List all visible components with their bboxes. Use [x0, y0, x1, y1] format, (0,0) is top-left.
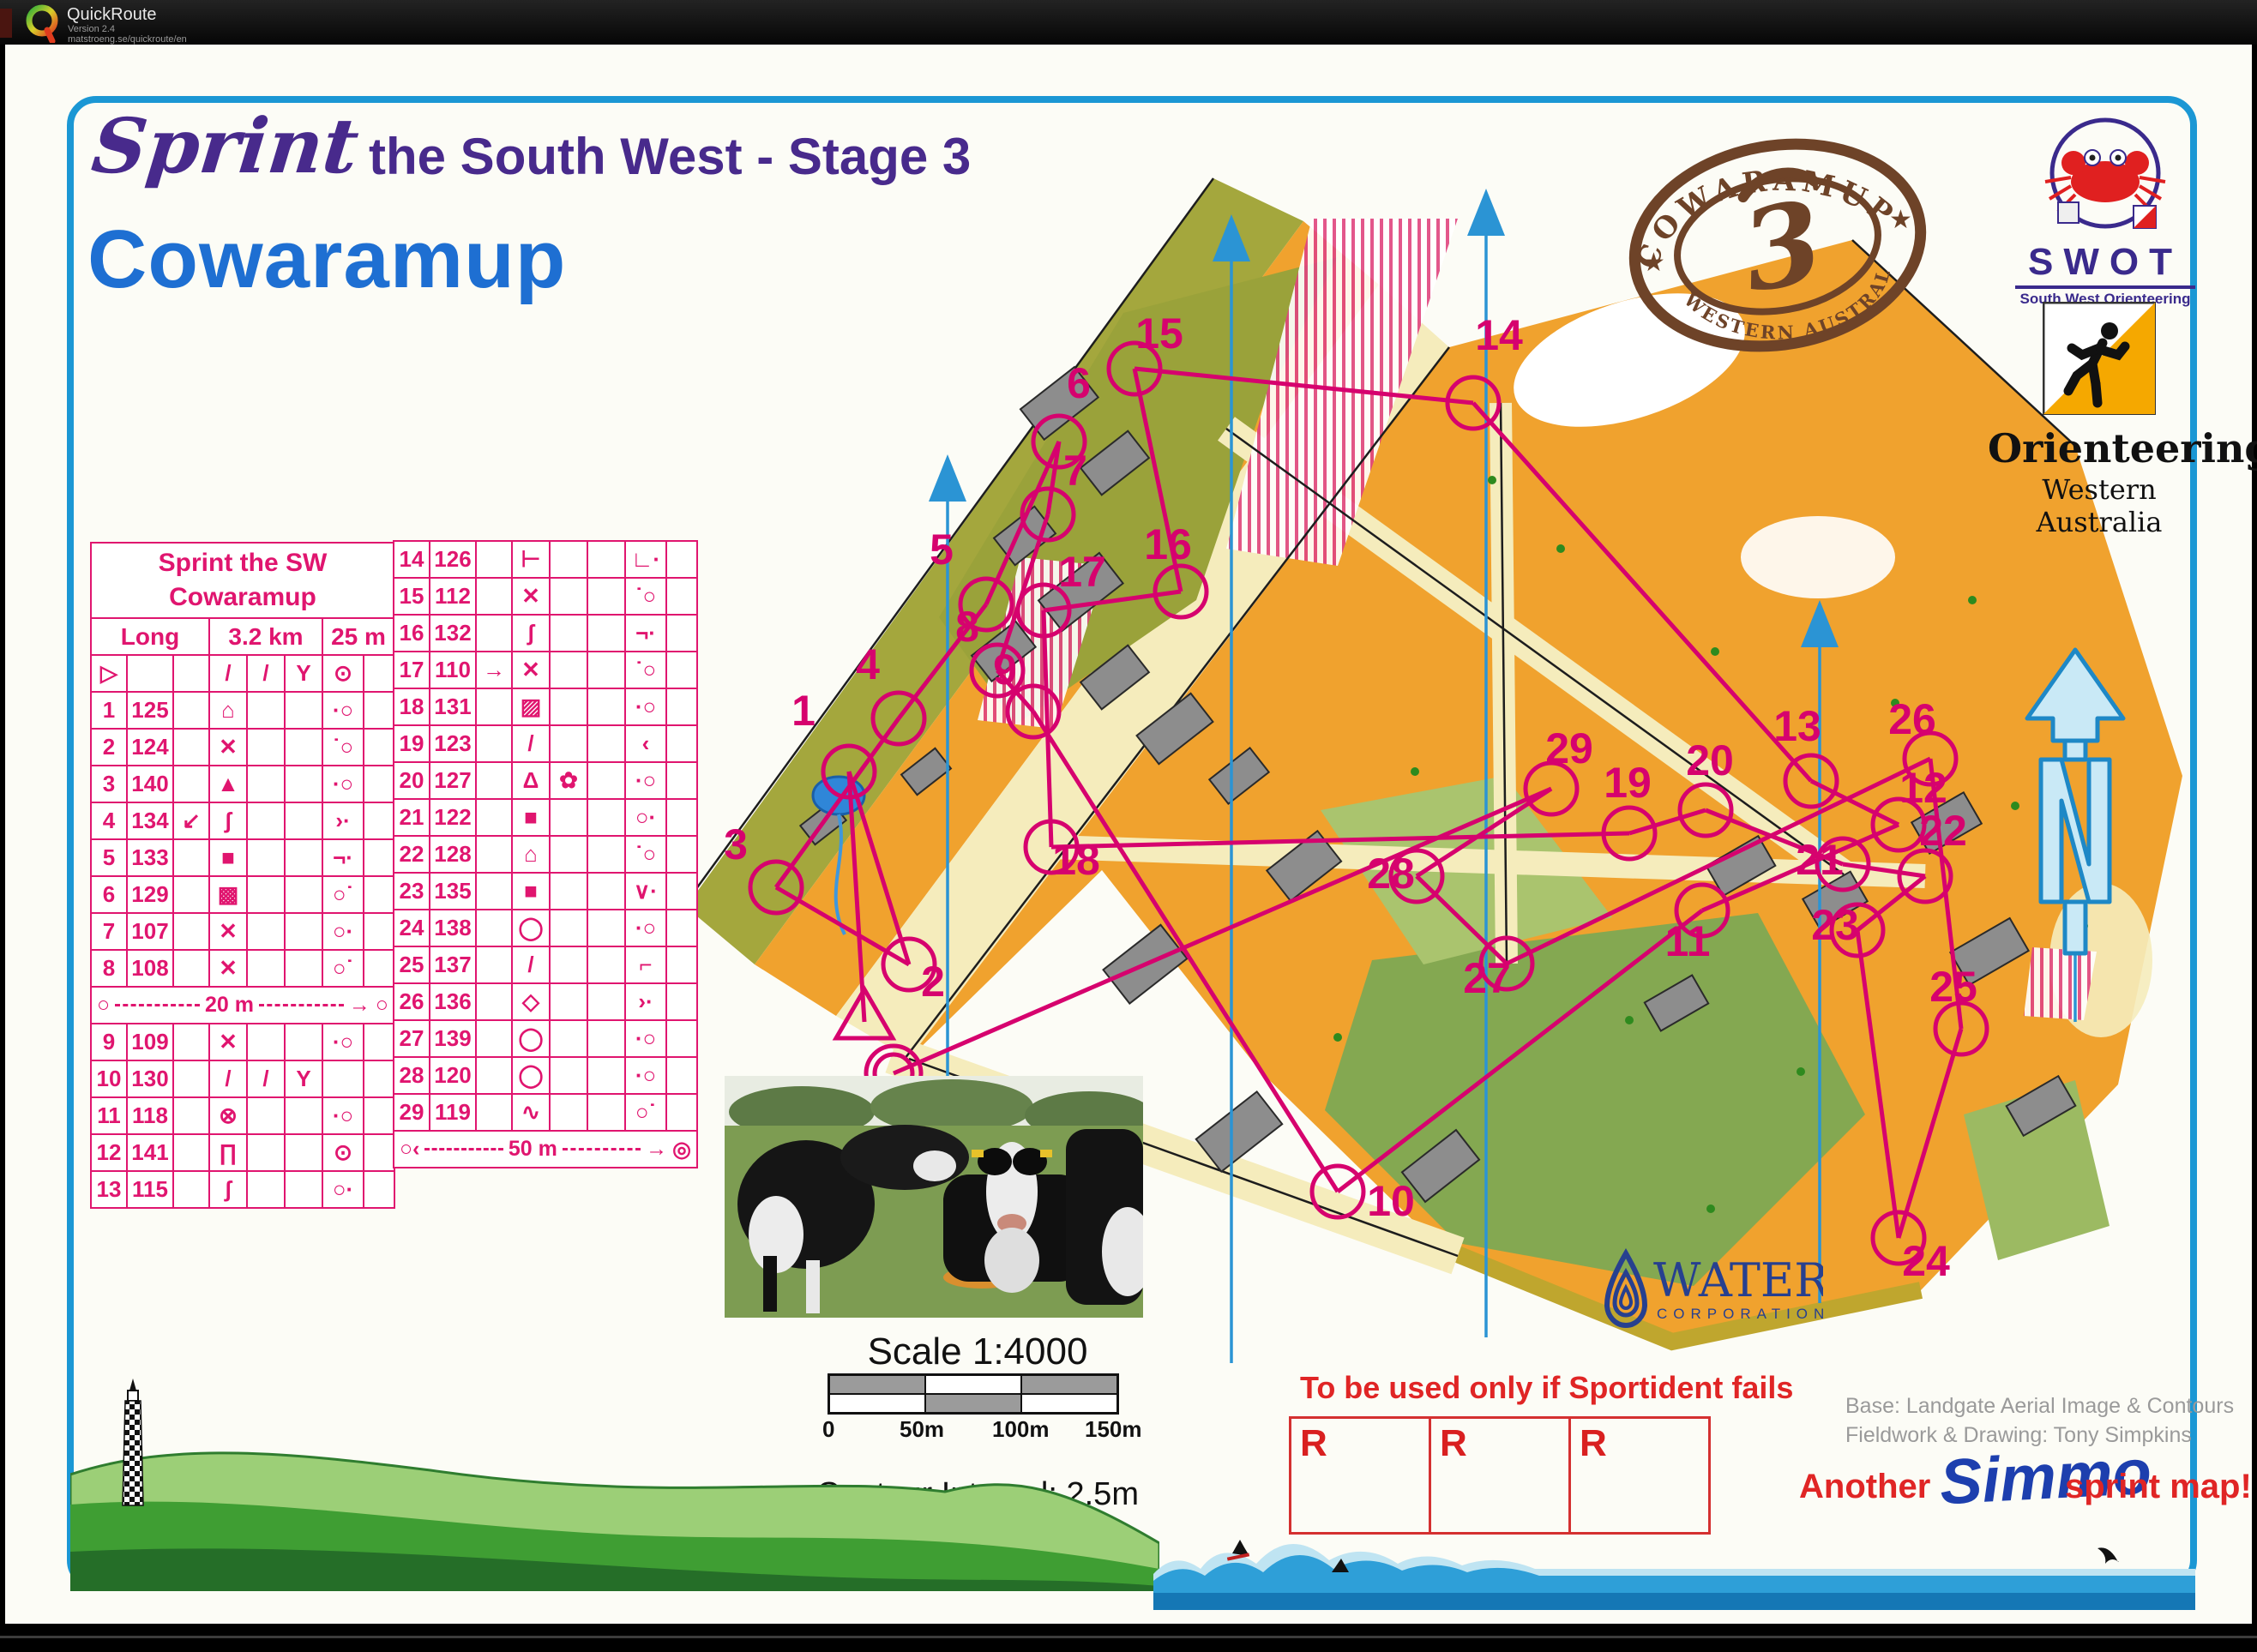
desc-cell: ⊢ [512, 541, 550, 578]
desc-cell: ∨· [625, 873, 666, 910]
desc-cell [550, 615, 587, 652]
desc-cell: 1 [91, 692, 127, 729]
desc-cell [666, 1094, 697, 1131]
desc-cell [587, 836, 625, 873]
desc-cell [587, 946, 625, 983]
control-number: 3 [724, 820, 748, 868]
desc-cell: / [512, 946, 550, 983]
desc-cell: ✕ [209, 950, 247, 987]
desc-cell: 14 [394, 541, 430, 578]
control-descriptions-sheet-1: Sprint the SW Cowaramup Long 3.2 km 25 m… [90, 542, 395, 1209]
desc-cell: ✕ [209, 729, 247, 766]
desc-cell [666, 652, 697, 688]
desc-cell: ʃ [209, 802, 247, 839]
punch-box-3: R [1568, 1416, 1711, 1535]
desc-cell: ■ [512, 799, 550, 836]
desc-cell [285, 839, 322, 876]
desc-cell: 18 [394, 688, 430, 725]
desc-event-name: Sprint the SW [92, 546, 394, 580]
control-number: 27 [1463, 954, 1511, 1002]
desc-cell: 130 [127, 1060, 173, 1097]
desc-row: ▷//Y⊙ [91, 655, 394, 692]
desc-cell: 123 [430, 725, 476, 762]
desc-cell [666, 836, 697, 873]
swot-logo: SWOT South West Orienteering Trekkers [1994, 113, 2217, 325]
desc-cell [285, 913, 322, 950]
desc-row: 15112✕˙○ [394, 578, 697, 615]
control-number: 17 [1058, 548, 1106, 596]
control-number: 26 [1888, 695, 1936, 743]
desc-cell [364, 1060, 394, 1097]
desc-cell: 17 [394, 652, 430, 688]
desc-cell: ▨ [512, 688, 550, 725]
cow-photo [725, 1076, 1143, 1318]
desc-cell [587, 688, 625, 725]
desc-cell [127, 655, 173, 692]
desc-cell [476, 1020, 512, 1057]
desc-cell [247, 950, 285, 987]
desc-row: 21122■○· [394, 799, 697, 836]
control-number: 2 [921, 958, 945, 1006]
desc-cell [322, 1060, 364, 1097]
desc-cell: 119 [430, 1094, 476, 1131]
desc-cell: ✕ [209, 1024, 247, 1060]
desc-cell [666, 983, 697, 1020]
desc-cell: 7 [91, 913, 127, 950]
control-number: 19 [1604, 759, 1652, 807]
desc-cell: 13 [91, 1171, 127, 1208]
desc-cell: 15 [394, 578, 430, 615]
desc-cell [476, 799, 512, 836]
desc-cell [666, 615, 697, 652]
desc-cell [364, 802, 394, 839]
punch-box-2: R [1429, 1416, 1571, 1535]
desc-cell: 128 [430, 836, 476, 873]
desc-row: 4134↙ʃ›· [91, 802, 394, 839]
desc-title-cell: Sprint the SW Cowaramup [91, 543, 394, 618]
desc-cell: ○˙ [322, 950, 364, 987]
desc-row: 11118⊗·○ [91, 1097, 394, 1134]
window-titlebar: QuickRoute Version 2.4 matstroeng.se/qui… [0, 0, 2257, 45]
desc-cell [476, 873, 512, 910]
desc-cell [173, 913, 209, 950]
desc-cell [550, 873, 587, 910]
desc-cell [666, 799, 697, 836]
desc-cell [247, 1171, 285, 1208]
desc-cell [550, 541, 587, 578]
desc-cell: 136 [430, 983, 476, 1020]
control-number: 28 [1367, 850, 1415, 898]
desc-cell [173, 692, 209, 729]
control-number: 25 [1929, 963, 1977, 1011]
desc-row: 27139◯·○ [394, 1020, 697, 1057]
desc-cell: ¬· [322, 839, 364, 876]
desc-cell [285, 1171, 322, 1208]
desc-cell [173, 1060, 209, 1097]
desc-cell [247, 766, 285, 802]
desc-cell: ○· [322, 913, 364, 950]
control-number: 18 [1052, 836, 1100, 884]
desc-cell [285, 692, 322, 729]
course-length: 3.2 km [209, 618, 322, 655]
desc-cell: 22 [394, 836, 430, 873]
control-number: 23 [1811, 901, 1859, 949]
desc-cell: / [512, 725, 550, 762]
desc-cell [550, 946, 587, 983]
desc-cell: 127 [430, 762, 476, 799]
desc-cell: 26 [394, 983, 430, 1020]
control-flag-icon [2134, 206, 2156, 228]
desc-header-row: Long 3.2 km 25 m [91, 618, 394, 655]
desc-cell [587, 615, 625, 652]
desc-cell [364, 1097, 394, 1134]
desc-cell [247, 729, 285, 766]
desc-cell [666, 688, 697, 725]
orienteering-wa-logo: Orienteering Western Australia [1988, 302, 2211, 538]
scale-label: Scale 1:4000 [797, 1331, 1158, 1373]
desc-cell [364, 950, 394, 987]
desc-cell: 20 [394, 762, 430, 799]
desc-cell: 11 [91, 1097, 127, 1134]
desc-divider-row: ○‹50 m→◎ [394, 1131, 697, 1168]
desc-cell [666, 1057, 697, 1094]
desc-cell: ✕ [512, 652, 550, 688]
desc-cell [173, 1171, 209, 1208]
desc-cell [587, 1094, 625, 1131]
desc-row: 18131▨·○ [394, 688, 697, 725]
desc-cell [587, 578, 625, 615]
desc-cell [666, 762, 697, 799]
desc-cell: ʃ [512, 615, 550, 652]
desc-cell: ○· [625, 799, 666, 836]
desc-cell: ✕ [209, 913, 247, 950]
desc-cell [173, 950, 209, 987]
desc-cell [173, 839, 209, 876]
desc-cell: 108 [127, 950, 173, 987]
desc-cell: 25 [394, 946, 430, 983]
desc-cell [285, 802, 322, 839]
control-number: 8 [955, 603, 979, 651]
desc-cell: ·○ [322, 766, 364, 802]
desc-cell: ○˙ [322, 876, 364, 913]
desc-cell: ✕ [512, 578, 550, 615]
desc-cell [173, 876, 209, 913]
map-title-city: Cowaramup [87, 213, 566, 307]
desc-cell [364, 766, 394, 802]
desc-cell: 120 [430, 1057, 476, 1094]
water-wordmark: WATER [1653, 1253, 1823, 1307]
desc-cell: ◇ [512, 983, 550, 1020]
desc-cell: ˙○ [625, 652, 666, 688]
desc-cell: ✿ [550, 762, 587, 799]
control-number: 21 [1796, 836, 1844, 884]
desc-cell [173, 1024, 209, 1060]
desc-cell: ʃ [209, 1171, 247, 1208]
control-number: 14 [1475, 311, 1523, 359]
credit-base: Base: Landgate Aerial Image & Contours [1845, 1394, 2234, 1419]
desc-cell: 134 [127, 802, 173, 839]
scan-edge-line [0, 1636, 2257, 1638]
desc-cell: ↙ [173, 802, 209, 839]
desc-cell [247, 913, 285, 950]
sportident-note: To be used only if Sportident fails [1300, 1370, 1793, 1406]
desc-cell [550, 688, 587, 725]
desc-cell [476, 762, 512, 799]
desc-row: 22128⌂˙○ [394, 836, 697, 873]
desc-row: 17110→✕˙○ [394, 652, 697, 688]
desc-cell [247, 876, 285, 913]
desc-row: 12141∏⊙ [91, 1134, 394, 1171]
desc-cell: ⊙ [322, 655, 364, 692]
desc-row: 1125⌂·○ [91, 692, 394, 729]
desc-cell [587, 541, 625, 578]
desc-cell [476, 688, 512, 725]
desc-cell [476, 541, 512, 578]
orienteering-wa-icon [2043, 302, 2156, 415]
desc-cell [476, 983, 512, 1020]
desc-cell [550, 983, 587, 1020]
desc-cell [285, 1134, 322, 1171]
desc-row: 2124✕˙○ [91, 729, 394, 766]
desc-row: 7107✕○· [91, 913, 394, 950]
desc-cell [550, 1094, 587, 1131]
desc-cell: 29 [394, 1094, 430, 1131]
desc-cell: 8 [91, 950, 127, 987]
desc-cell: 131 [430, 688, 476, 725]
desc-cell: ⊗ [209, 1097, 247, 1134]
simmo-pre: Another [1799, 1468, 1930, 1506]
desc-cell [364, 692, 394, 729]
desc-cell [247, 1097, 285, 1134]
desc-cell [247, 1024, 285, 1060]
desc-cell [587, 873, 625, 910]
desc-row: 8108✕○˙ [91, 950, 394, 987]
desc-cell [173, 766, 209, 802]
desc-cell: / [247, 655, 285, 692]
swot-acronym: SWOT [1994, 241, 2217, 284]
desc-cell [550, 1020, 587, 1057]
desc-cell: 138 [430, 910, 476, 946]
desc-cell [364, 1134, 394, 1171]
desc-cell [587, 983, 625, 1020]
desc-row: 28120◯·○ [394, 1057, 697, 1094]
desc-cell [364, 655, 394, 692]
desc-cell: ›· [625, 983, 666, 1020]
desc-cell: ⊙ [322, 1134, 364, 1171]
desc-cell: 28 [394, 1057, 430, 1094]
desc-cell [666, 1020, 697, 1057]
desc-cell [587, 652, 625, 688]
control-number: 7 [1063, 447, 1087, 495]
control-descriptions-sheet-2: 14126⊢∟·15112✕˙○16132ʃ¬·17110→✕˙○18131▨·… [393, 540, 698, 1168]
desc-cell [285, 766, 322, 802]
desc-cell: ·○ [625, 762, 666, 799]
desc-cell [476, 725, 512, 762]
desc-row: 3140▲·○ [91, 766, 394, 802]
control-number: 29 [1545, 724, 1593, 772]
desc-cell: ˙○ [625, 836, 666, 873]
desc-cell [285, 729, 322, 766]
lighthouse-icon [114, 1379, 152, 1507]
desc-cell [364, 1171, 394, 1208]
desc-cell: 3 [91, 766, 127, 802]
desc-cell [587, 1020, 625, 1057]
desc-cell [666, 541, 697, 578]
desc-row: 13115ʃ○· [91, 1171, 394, 1208]
desc-cell: ¬· [625, 615, 666, 652]
desc-cell: 23 [394, 873, 430, 910]
desc-cell: 133 [127, 839, 173, 876]
desc-row: 20127Δ✿·○ [394, 762, 697, 799]
desc-cell: 6 [91, 876, 127, 913]
desc-cell: 118 [127, 1097, 173, 1134]
scale-bar-segments [828, 1373, 1119, 1415]
app-url: matstroeng.se/quickroute/en [68, 34, 187, 45]
owa-line2: Western Australia [1988, 473, 2211, 538]
desc-cell: 122 [430, 799, 476, 836]
desc-cell: ·○ [625, 1020, 666, 1057]
desc-cell: ›· [322, 802, 364, 839]
desc-cell: ·○ [625, 910, 666, 946]
desc-cell: ‹ [625, 725, 666, 762]
punch-box-letter: R [1580, 1422, 1607, 1464]
desc-cell: ˙○ [625, 578, 666, 615]
desc-cell: 124 [127, 729, 173, 766]
desc-cell [550, 1057, 587, 1094]
desc-cell [173, 1097, 209, 1134]
desc-cell: 12 [91, 1134, 127, 1171]
desc-cell: 24 [394, 910, 430, 946]
desc-cell [550, 836, 587, 873]
control-number: 15 [1135, 309, 1183, 357]
punch-box-letter: R [1440, 1422, 1467, 1464]
control-number: 24 [1902, 1237, 1950, 1285]
desc-cell [285, 876, 322, 913]
desc-cell: ▲ [209, 766, 247, 802]
control-number: 5 [930, 526, 954, 574]
desc-cell: ˙○ [322, 729, 364, 766]
desc-cell: Y [285, 655, 322, 692]
desc-cell [476, 578, 512, 615]
desc-cell: 137 [430, 946, 476, 983]
desc-cell: 109 [127, 1024, 173, 1060]
desc-cell [247, 839, 285, 876]
desc-cell [476, 836, 512, 873]
simmo-post: sprint map! [2065, 1468, 2252, 1506]
desc-row: 25137/⌐ [394, 946, 697, 983]
desc-cell: / [247, 1060, 285, 1097]
desc-cell [173, 729, 209, 766]
desc-cell: 27 [394, 1020, 430, 1057]
desc-cell [364, 729, 394, 766]
desc-row: 16132ʃ¬· [394, 615, 697, 652]
stamp-star-left: ★ [1642, 249, 1665, 277]
cowaramup-stamp: COWARAMUP WESTERN AUSTRALIA ★ ★ 3 [1623, 125, 1932, 369]
desc-cell [247, 692, 285, 729]
hills-illustration [70, 1423, 1159, 1591]
desc-cell [666, 873, 697, 910]
desc-cell: Δ [512, 762, 550, 799]
punch-box-letter: R [1300, 1422, 1327, 1464]
course-climb: 25 m [322, 618, 394, 655]
water-corporation-logo: WATER CORPORATION [1600, 1243, 1823, 1342]
desc-cell: 19 [394, 725, 430, 762]
desc-cell: ⌐ [625, 946, 666, 983]
desc-cell [285, 1024, 322, 1060]
control-number: 16 [1144, 520, 1192, 568]
desc-title-row: Sprint the SW Cowaramup [91, 543, 394, 618]
desc-cell: ⌂ [512, 836, 550, 873]
desc-cell: → [476, 652, 512, 688]
event-title-script: Sprint [88, 101, 363, 190]
desc-cell: 107 [127, 913, 173, 950]
desc-cell: ∏ [209, 1134, 247, 1171]
desc-cell: 141 [127, 1134, 173, 1171]
desc-cell [550, 725, 587, 762]
desc-row: 9109✕·○ [91, 1024, 394, 1060]
desc-cell: 16 [394, 615, 430, 652]
desc-cell: Y [285, 1060, 322, 1097]
desc-cell: 129 [127, 876, 173, 913]
desc-cell [476, 1094, 512, 1131]
desc-cell: / [209, 1060, 247, 1097]
whale-tail-icon [2098, 1547, 2119, 1564]
desc-cell: ▩ [209, 876, 247, 913]
desc-cell: ◯ [512, 910, 550, 946]
desc-cell [666, 578, 697, 615]
water-sub: CORPORATION [1657, 1306, 1823, 1322]
control-number: 20 [1686, 736, 1734, 784]
desc-cell [550, 578, 587, 615]
desc-cell: ■ [512, 873, 550, 910]
desc-cell [247, 1134, 285, 1171]
water-drop-icon [1607, 1253, 1645, 1325]
desc-cell: 126 [430, 541, 476, 578]
desc-cell [364, 913, 394, 950]
desc-cell [364, 876, 394, 913]
desc-row: 5133■¬· [91, 839, 394, 876]
desc-cell: ⌂ [209, 692, 247, 729]
quickroute-logo-icon [24, 3, 62, 43]
desc-cell: ·○ [625, 688, 666, 725]
desc-cell [364, 1024, 394, 1060]
owa-line1: Orienteering [1988, 425, 2211, 472]
desc-row: 26136◇›· [394, 983, 697, 1020]
control-number: 10 [1367, 1177, 1415, 1225]
desc-cell: ·○ [322, 1097, 364, 1134]
desc-cell: 9 [91, 1024, 127, 1060]
swot-crab-icon [2032, 113, 2178, 242]
desc-cell: 5 [91, 839, 127, 876]
desc-cell: 112 [430, 578, 476, 615]
desc-cell [285, 950, 322, 987]
punch-box-1: R [1289, 1416, 1431, 1535]
desc-divider-row: ○20 m→○ [91, 987, 394, 1024]
desc-cell: 10 [91, 1060, 127, 1097]
desc-row: 10130//Y [91, 1060, 394, 1097]
desc-row: 23135■∨· [394, 873, 697, 910]
desc-cell [173, 1134, 209, 1171]
control-number: 4 [856, 640, 880, 688]
desc-cell [476, 946, 512, 983]
ocean-illustration [1153, 1524, 2195, 1610]
desc-cell [364, 839, 394, 876]
desc-cell [173, 655, 209, 692]
event-title-rest: the South West - Stage 3 [369, 127, 971, 186]
desc-cell: 4 [91, 802, 127, 839]
control-number: 11 [1665, 917, 1711, 965]
course-name: Long [91, 618, 209, 655]
